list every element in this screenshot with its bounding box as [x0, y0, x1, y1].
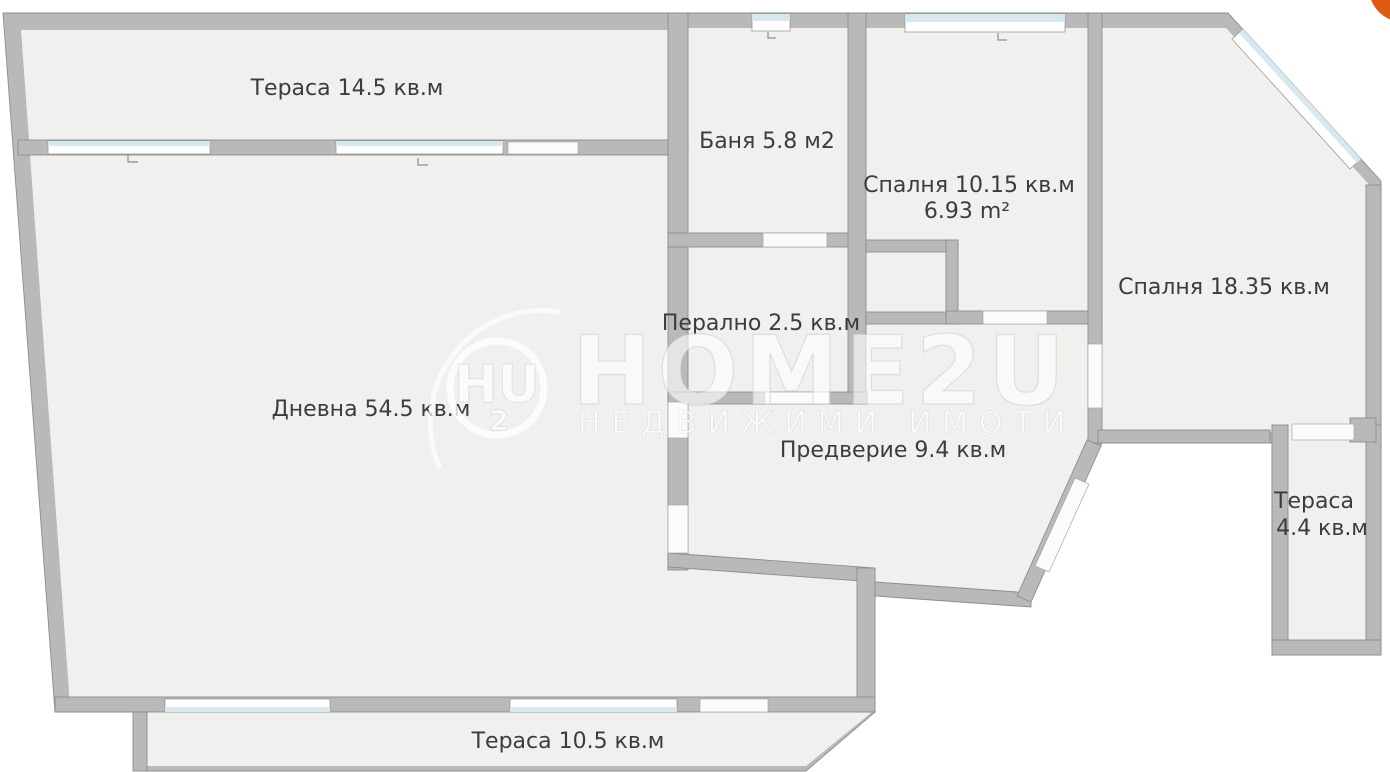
closet-shaft-floor — [872, 248, 950, 317]
wall-bedroom-large-east — [1366, 185, 1381, 430]
room-hallway-label: Предверие 9.4 кв.м — [780, 438, 1006, 463]
room-terrace-right-label: Тераса — [1273, 489, 1354, 514]
window-living-south-2-glass — [510, 707, 677, 712]
door-terrace-right — [1292, 424, 1354, 440]
room-terrace-bottom-label: Тераса 10.5 кв.м — [471, 729, 665, 754]
floor-plan-svg: Тераса 14.5 кв.м Баня 5.8 м2 Спалня 10.1… — [0, 0, 1390, 772]
door-living-to-terrace-top — [508, 142, 578, 154]
room-bedroom-large-label: Спалня 18.35 кв.м — [1118, 275, 1330, 300]
room-bedroom-small-sublabel: 6.93 m² — [924, 199, 1010, 224]
door-living-to-terrace-bottom — [700, 699, 768, 712]
door-bedroom-large — [1088, 344, 1102, 408]
wall-terrace-bottom-west — [133, 712, 147, 771]
door-bedroom-small — [983, 311, 1047, 324]
wall-closet-south — [866, 312, 958, 324]
room-laundry-label: Перално 2.5 кв.м — [662, 311, 860, 336]
window-terrace-top-2-glass — [336, 141, 503, 146]
floor-plan-page: Тераса 14.5 кв.м Баня 5.8 м2 Спалня 10.1… — [0, 0, 1390, 772]
window-bathroom-top-glass — [752, 14, 790, 21]
wall-closet-north — [866, 240, 958, 252]
wall-terrace-right-east — [1366, 425, 1381, 655]
door-laundry — [765, 392, 829, 404]
brand-logo-corner — [1369, 0, 1390, 22]
room-terrace-right-sublabel: 4.4 кв.м — [1276, 516, 1368, 541]
room-terrace-top-label: Тераса 14.5 кв.м — [250, 76, 444, 101]
wall-terrace-right-south — [1272, 640, 1381, 655]
room-living-room-label: Дневна 54.5 кв.м — [272, 397, 471, 422]
room-bedroom-small-label: Спалня 10.15 кв.м — [863, 173, 1075, 198]
wall-main-vertical — [668, 13, 688, 570]
window-terrace-top-1-glass — [48, 141, 210, 146]
door-hallway-lower — [668, 505, 688, 553]
wall-bathroom-bedroom-divider — [848, 13, 866, 404]
room-bathroom-label: Баня 5.8 м2 — [699, 129, 835, 154]
wall-living-east — [857, 568, 875, 712]
wall-bedroom-large-south — [1098, 430, 1270, 443]
window-living-south-1-glass — [165, 707, 330, 712]
room-bedroom-large-floor — [1098, 28, 1374, 432]
door-bathroom — [763, 233, 827, 247]
window-bedroom-small-top-glass — [905, 14, 1065, 22]
door-hallway-upper — [668, 402, 688, 438]
